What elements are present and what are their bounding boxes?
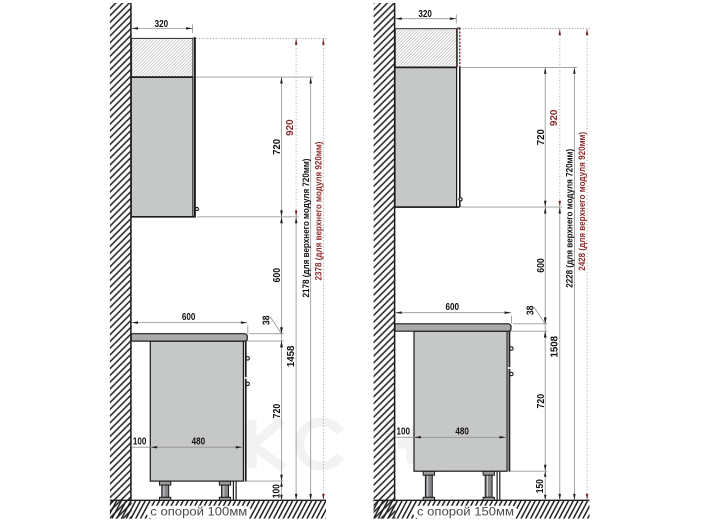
svg-text:320: 320 [155,19,169,30]
svg-text:720: 720 [272,138,283,154]
svg-text:38: 38 [525,305,536,315]
svg-text:2428 (для верхнего модуля 920м: 2428 (для верхнего модуля 920мм) [577,132,587,271]
svg-text:100: 100 [271,484,282,498]
svg-text:720: 720 [536,129,547,145]
svg-text:720: 720 [536,394,547,409]
svg-text:1458: 1458 [286,345,297,367]
svg-text:600: 600 [536,258,547,273]
svg-text:с опорой 150мм: с опорой 150мм [417,505,514,518]
svg-text:320: 320 [418,9,432,20]
svg-text:720: 720 [272,403,283,418]
svg-text:1508: 1508 [550,336,561,358]
svg-text:480: 480 [455,426,469,437]
svg-text:38: 38 [262,315,273,325]
svg-text:100: 100 [133,436,147,447]
svg-text:2178 (для верхнего модуля 720м: 2178 (для верхнего модуля 720мм) [301,158,311,297]
svg-text:920: 920 [285,119,296,136]
svg-text:600: 600 [446,302,460,313]
svg-text:2228 (для верхнего модуля 720м: 2228 (для верхнего модуля 720мм) [565,149,575,288]
svg-text:480: 480 [192,436,206,447]
svg-text:с опорой 100мм: с опорой 100мм [150,505,247,518]
svg-text:600: 600 [272,268,283,283]
svg-text:600: 600 [182,312,196,323]
svg-text:100: 100 [397,426,411,437]
svg-text:150: 150 [535,479,546,493]
svg-text:920: 920 [549,109,560,126]
svg-text:2378 (для верхнего модуля 920м: 2378 (для верхнего модуля 920мм) [313,141,323,280]
